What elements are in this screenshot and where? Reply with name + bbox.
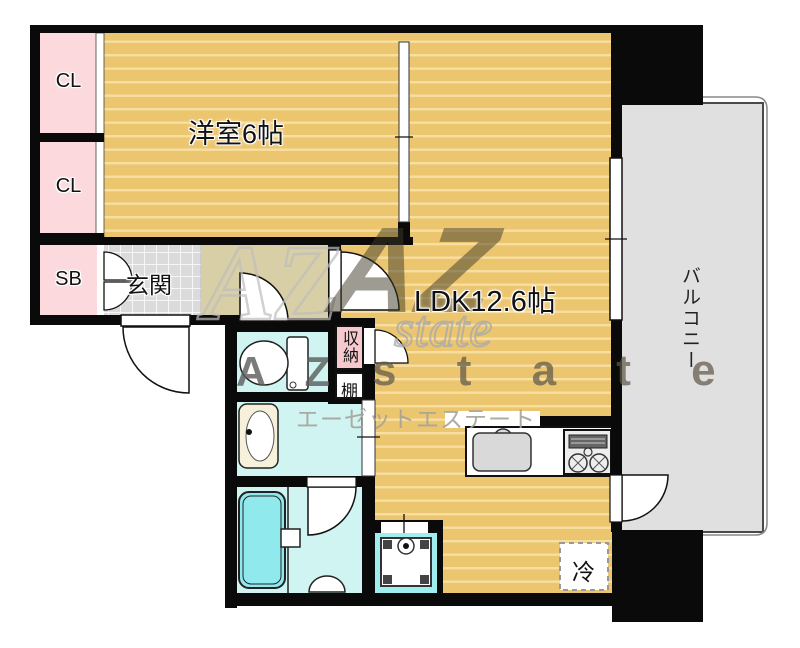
bath-control-box [281, 529, 300, 547]
bathtub-icon [239, 492, 285, 588]
kitchen-sink-icon [473, 433, 531, 471]
label-ldk: LDK12.6帖 [414, 278, 556, 320]
pipe-space-block-top [612, 25, 703, 105]
kitchen-backsplash [445, 411, 540, 428]
bathroom-door-leaf [307, 477, 356, 487]
entrance-door-leaf [121, 315, 190, 326]
toilet-tank [287, 337, 308, 390]
outside-area [0, 325, 225, 648]
label-closet1: CL [40, 70, 97, 93]
stove-knob [584, 448, 592, 456]
floor-plan: AZ AZ state A Z s t a t e エーゼットエステート CL … [0, 0, 800, 648]
label-storage: 収納 [340, 330, 356, 364]
label-shelf: 棚 [341, 377, 358, 402]
label-balcony: バルコニー [676, 266, 703, 371]
balcony-door-leaf [610, 475, 622, 522]
stove-grill [569, 435, 607, 448]
corridor-ldk-door-leaf [329, 250, 341, 312]
toilet-icon [240, 341, 288, 385]
label-closet2: CL [40, 175, 97, 198]
label-entrance: 玄関 [126, 266, 172, 300]
pipe-space-block-bottom [612, 530, 703, 622]
partition-western-ldk [399, 42, 409, 222]
label-western-room: 洋室6帖 [188, 112, 284, 151]
label-shoebox: SB [40, 268, 97, 291]
washroom-sliding-door [362, 400, 375, 476]
label-refrigerator: 冷 [572, 553, 595, 587]
